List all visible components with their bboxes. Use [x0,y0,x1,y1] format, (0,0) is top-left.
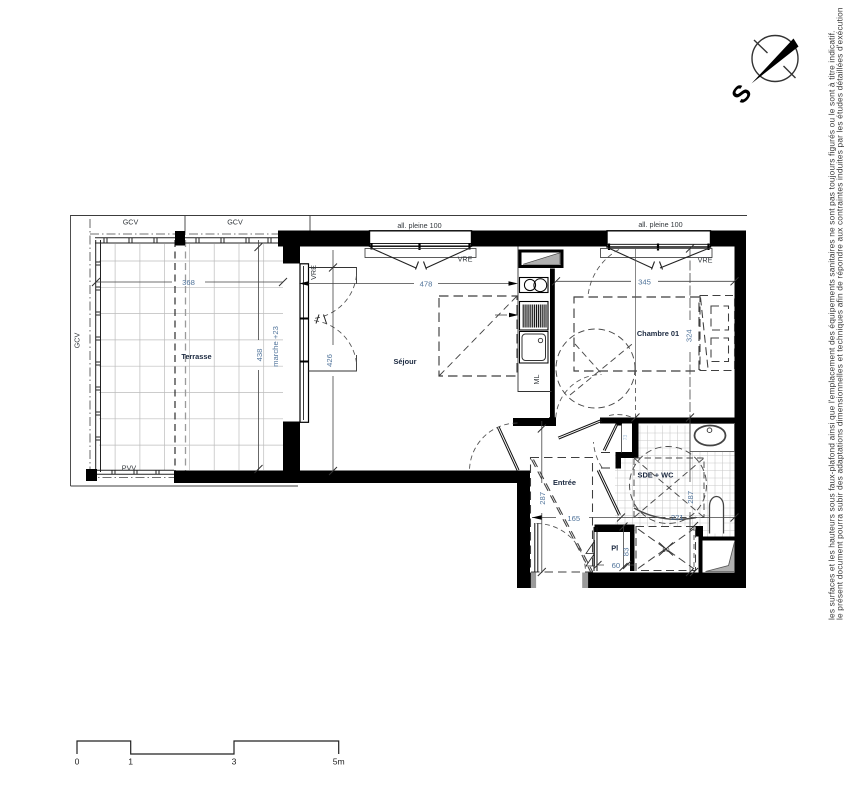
svg-text:Pl: Pl [611,543,618,552]
svg-text:all. pleine 100: all. pleine 100 [638,220,682,229]
svg-text:all. pleine 100: all. pleine 100 [397,221,441,230]
svg-text:Chambre 01: Chambre 01 [637,329,679,338]
svg-text:SDE + WC: SDE + WC [638,470,675,479]
svg-text:Séjour: Séjour [394,357,417,366]
svg-text:60: 60 [612,561,621,570]
svg-text:221: 221 [671,513,684,522]
svg-text:5m: 5m [333,757,345,767]
svg-text:Terrasse: Terrasse [181,352,211,361]
svg-text:438: 438 [255,349,264,362]
svg-text:GCV: GCV [227,218,243,227]
svg-text:GCV: GCV [123,218,139,227]
svg-text:VRE: VRE [458,255,473,264]
svg-text:VRE: VRE [309,265,318,280]
svg-text:73: 73 [623,435,629,441]
svg-text:3: 3 [232,757,237,767]
svg-text:Entrée: Entrée [553,478,576,487]
svg-text:478: 478 [420,280,433,289]
svg-text:345: 345 [638,277,651,286]
svg-text:287: 287 [538,492,547,505]
svg-text:VRE: VRE [698,256,713,265]
svg-text:165: 165 [567,514,580,523]
svg-text:les surfaces et les hauteurs s: les surfaces et les hauteurs sous faux-p… [827,30,837,620]
svg-text:0: 0 [75,757,80,767]
svg-text:PVV: PVV [122,464,137,473]
svg-text:83: 83 [622,548,631,557]
svg-text:1: 1 [128,757,133,767]
svg-text:ML: ML [532,375,541,385]
svg-text:GCV: GCV [73,333,82,349]
svg-text:426: 426 [325,354,334,367]
svg-text:287: 287 [686,491,695,504]
svg-text:324: 324 [685,329,694,343]
svg-text:368: 368 [182,278,195,287]
svg-text:marche +23: marche +23 [271,326,280,367]
svg-text:90: 90 [663,547,670,554]
